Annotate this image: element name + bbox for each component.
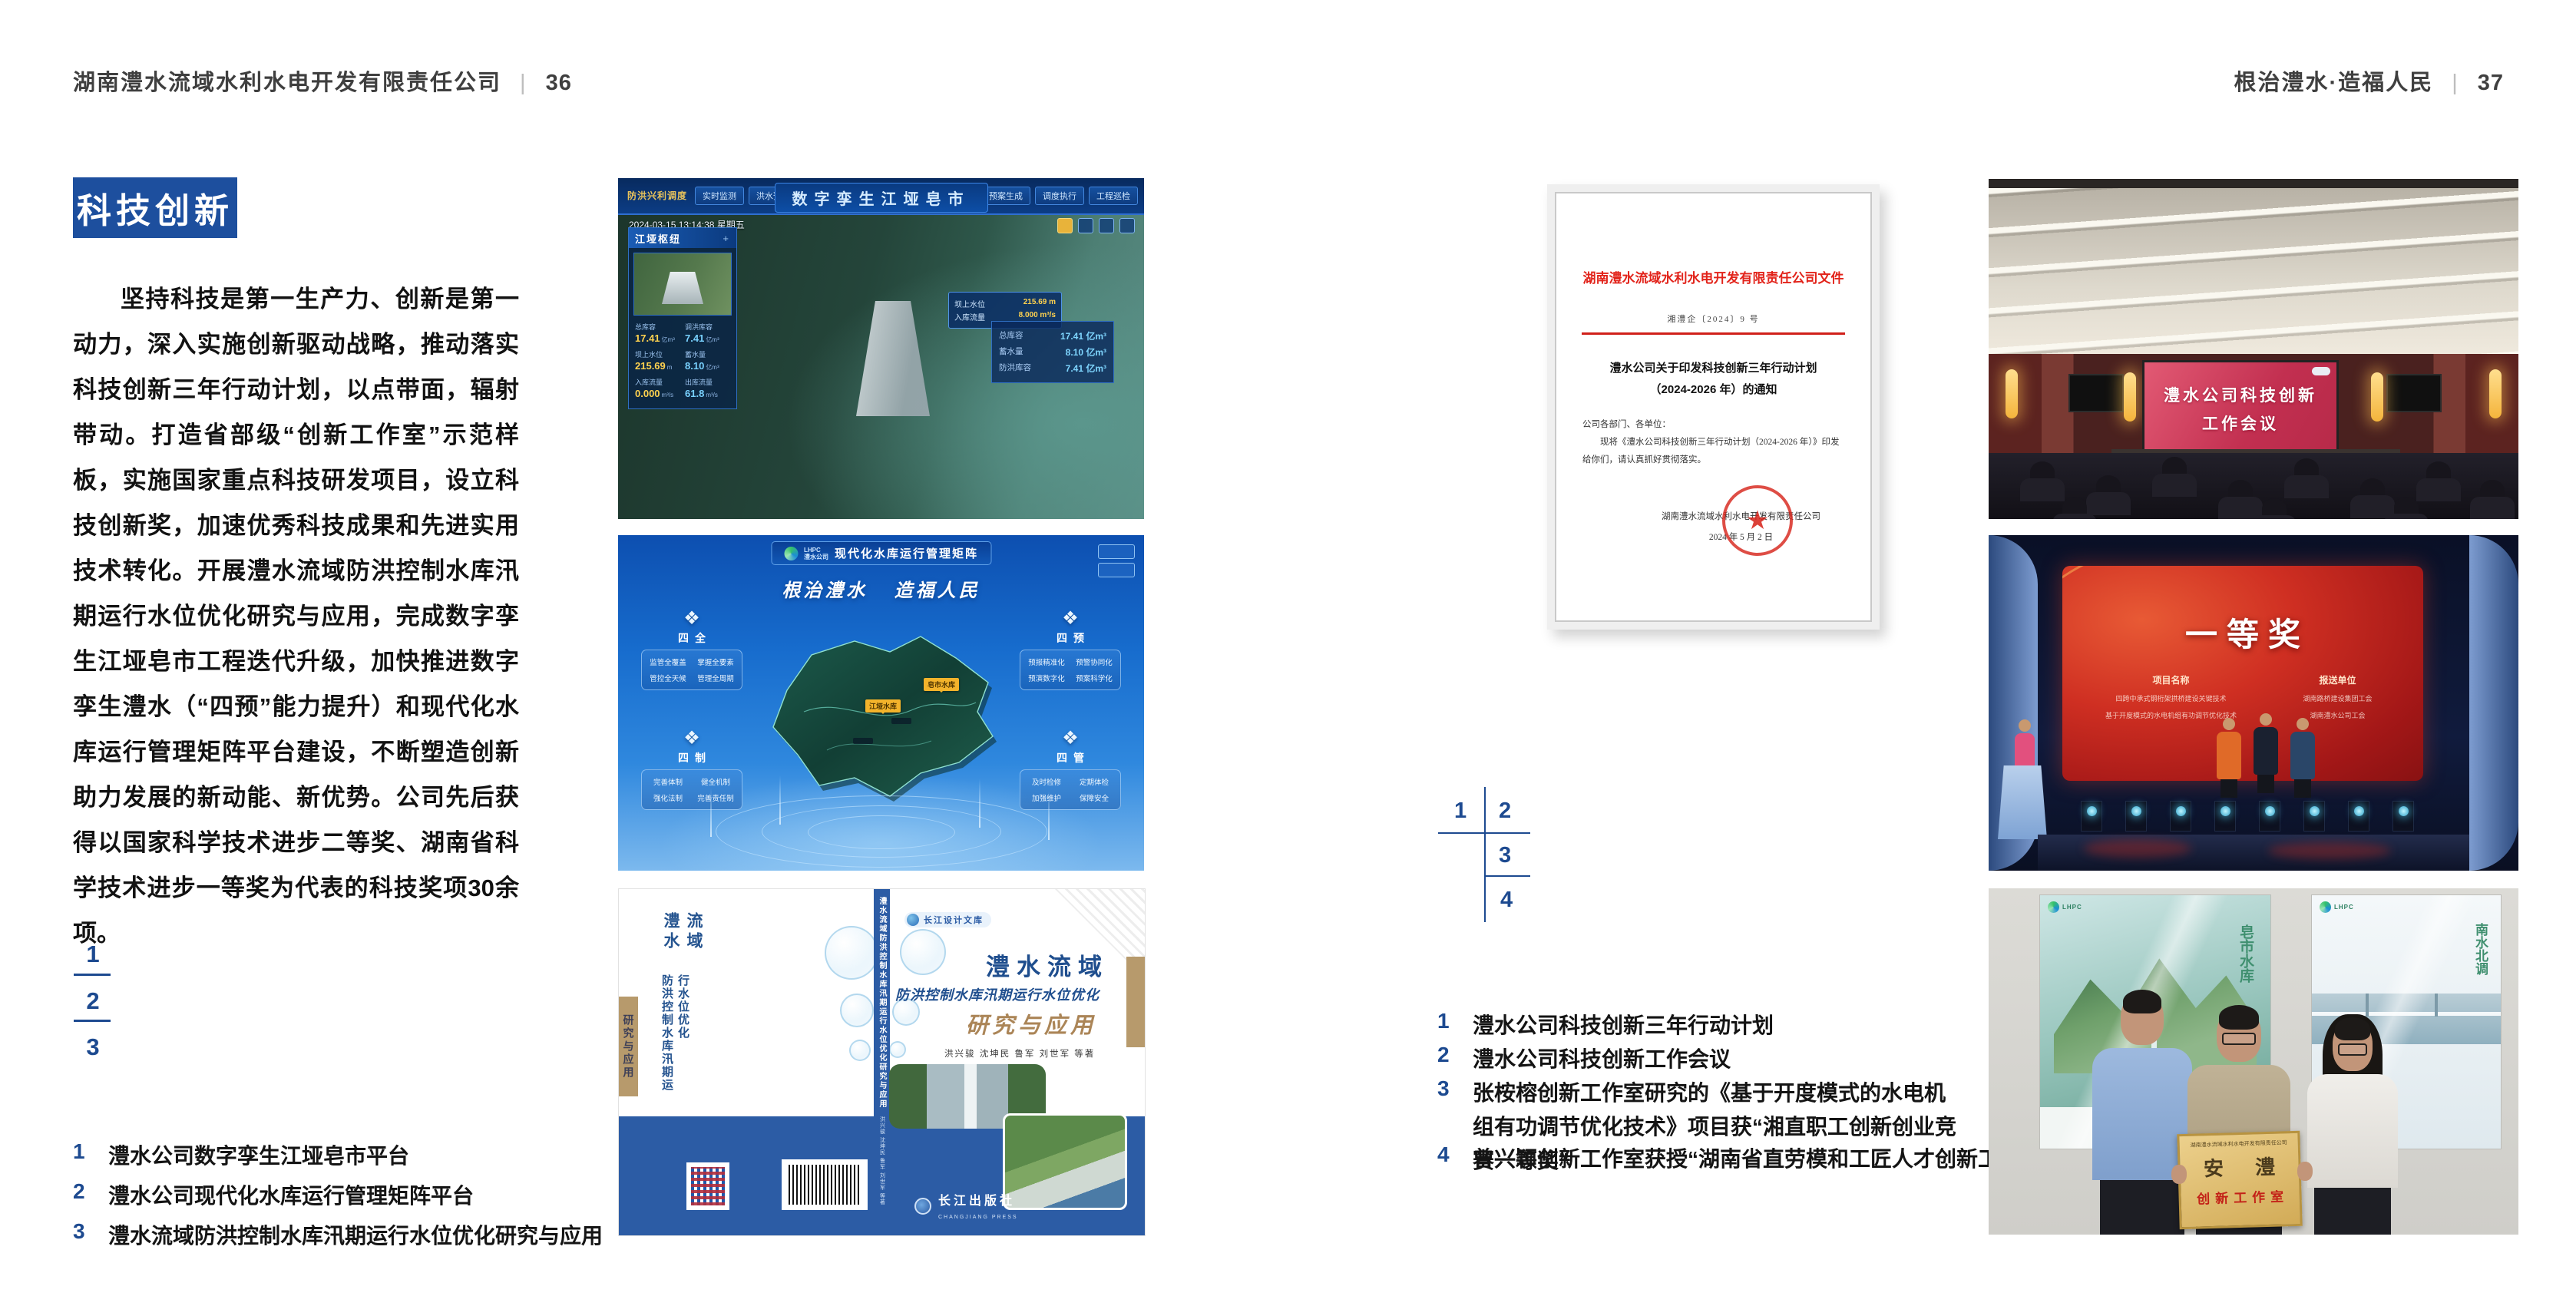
panel-icon: ❖	[1020, 729, 1121, 749]
figure-ref-1: 1	[1454, 798, 1467, 824]
panel-items: 预报精准化预警协同化 预演数字化预案科学化	[1020, 650, 1121, 690]
layers-icon	[1078, 218, 1093, 233]
section-title-badge: 科技创新	[73, 177, 237, 238]
photo-award-ceremony: 一等奖 项目名称 报送单位 四跨中承式钢桁架拱桥建设关键技术 湖南路桥建设集团工…	[1989, 535, 2518, 871]
figure-ref-divider	[74, 974, 111, 976]
person-head	[2121, 993, 2164, 1045]
hand	[2171, 1165, 2187, 1184]
person-legs	[2294, 779, 2311, 798]
small-station-tag	[891, 718, 911, 724]
slogan-text: 根治澧水·造福人民	[2234, 71, 2434, 95]
barcode-bars	[789, 1165, 861, 1205]
panel-siquan: ❖ 四全 监管全覆盖掌握全要素 管控全天候管理全周期	[641, 609, 742, 690]
person-head	[2217, 1008, 2261, 1062]
qr-pixels	[691, 1167, 725, 1205]
spine-authors: 洪兴骏 沈坤民 鲁军 刘世军 等著	[878, 1116, 886, 1205]
wall-lamp	[2006, 369, 2018, 418]
ceiling-light-strips	[1989, 188, 2518, 354]
awardee-orange	[2216, 718, 2242, 798]
host-podium	[1998, 765, 2047, 839]
right-page-header: 根治澧水·造福人民|37	[2234, 64, 2504, 97]
matrix-slogan: 根治澧水 造福人民	[618, 575, 1144, 602]
seal-star-icon: ★	[1746, 505, 1769, 536]
figure-ref-1: 1	[73, 941, 113, 968]
wall-tv-screen	[2386, 374, 2442, 412]
figure-ref-4: 4	[1500, 888, 1513, 913]
light-bulb	[2354, 806, 2364, 816]
dam-3d-model	[856, 301, 930, 416]
back-title-line2: 防洪控制水库汛期运行水位优化	[659, 974, 705, 1096]
salutation: 公司各部门、各单位：	[1582, 416, 1844, 434]
light-bulb	[2310, 806, 2320, 816]
floor-reflection	[2084, 839, 2191, 858]
light-bulb	[2265, 806, 2275, 816]
figure-official-document: 湖南澧水流域水利水电开发有限责任公司文件 湘澧企〔2024〕9 号 澧水公司关于…	[1547, 184, 1880, 630]
panel-icon: ❖	[1020, 609, 1121, 629]
stage-light	[2392, 801, 2414, 832]
left-page-number: 36	[546, 71, 572, 95]
stage-side-panel	[2469, 535, 2518, 871]
twin-platform-title: 数字孪生江垭皂市	[775, 183, 988, 213]
magazine-spread: 湖南澧水流域水利水电开发有限责任公司|36 根治澧水·造福人民|37 科技创新 …	[0, 0, 2576, 1306]
stage-light	[2259, 801, 2280, 832]
audience-person	[2096, 475, 2121, 497]
person-legs	[2257, 775, 2274, 793]
header-divider: |	[520, 71, 527, 95]
tooltip-row: 坝上水位215.69 m	[954, 298, 1056, 309]
right-page-number: 37	[2478, 71, 2504, 95]
cover-tan-block-front	[1126, 957, 1145, 1047]
figure-ref-2: 2	[73, 987, 113, 1015]
back-title-line1: 澧水流域	[659, 912, 705, 965]
matrix-header: LHPC澧水公司 现代化水库运行管理矩阵	[771, 541, 991, 565]
figure-ref-vline	[1484, 787, 1486, 922]
series-badge: 长江设计文库	[904, 912, 991, 927]
caption-number: 3	[73, 1219, 108, 1253]
document-page: 湖南澧水流域水利水电开发有限责任公司文件 湘澧企〔2024〕9 号 澧水公司关于…	[1555, 192, 1872, 622]
figure-digital-twin-platform: 防洪兴利调度 实时监测 洪水预报 防洪预警 态势预测 预案生成 调度执行 工程巡…	[618, 178, 1144, 519]
notice-title: 澧水公司关于印发科技创新三年行动计划（2024-2026 年）的通知	[1556, 358, 1870, 401]
alert-icon	[1119, 218, 1135, 233]
award-led-screen: 一等奖 项目名称 报送单位 四跨中承式钢桁架拱桥建设关键技术 湖南路桥建设集团工…	[2062, 566, 2423, 781]
caption-text: 澧水公司数字孪生江垭皂市平台	[108, 1139, 409, 1173]
stage-light	[2081, 801, 2102, 832]
award-title: 一等奖	[2062, 609, 2423, 656]
person-head	[2019, 719, 2031, 732]
photo-studio-group: LHPC 皂市水库 LHPC 南水北调	[1989, 888, 2518, 1235]
front-title-line1: 澧水流域	[986, 947, 1109, 982]
person-pants	[2314, 1188, 2391, 1235]
small-station-tag	[853, 738, 873, 744]
caption-number: 2	[73, 1179, 108, 1213]
isbn-barcode	[782, 1159, 868, 1210]
award-project: 四跨中承式钢桁架拱桥建设关键技术	[2082, 693, 2260, 703]
caption-number: 2	[1437, 1043, 1473, 1076]
audience-person	[2162, 457, 2187, 478]
person-hair	[2219, 1005, 2259, 1030]
side-stat-row: 蓄水量8.10 亿m³	[999, 346, 1106, 359]
light-bulb	[2399, 806, 2409, 816]
locate-icon	[1099, 218, 1114, 233]
person-hair	[2335, 1017, 2370, 1040]
twin-toolbar-icons	[1057, 218, 1135, 233]
light-bulb	[2221, 806, 2230, 816]
caption-text: 曾兴颖创新工作室获授“湖南省直劳模和工匠人才创新工作室”	[1473, 1142, 2053, 1176]
dam-thumbnail	[633, 253, 732, 316]
side-stat-row: 总库容17.41 亿m³	[999, 329, 1106, 342]
panel-icon: ❖	[641, 729, 742, 749]
left-page-header: 湖南澧水流域水利水电开发有限责任公司|36	[73, 64, 572, 97]
audience-person	[2480, 480, 2505, 501]
light-pillar	[779, 775, 781, 825]
stat-cell: 出库流量61.8m³/s	[685, 377, 730, 401]
front-title-line3: 研究与应用	[966, 1007, 1096, 1040]
document-red-header: 湖南澧水流域水利水电开发有限责任公司文件	[1569, 267, 1858, 286]
glasses-icon	[2222, 1033, 2256, 1045]
caption-row: 4 曾兴颖创新工作室获授“湖南省直劳模和工匠人才创新工作室”	[1437, 1142, 2053, 1176]
stage-light	[2170, 801, 2191, 832]
meeting-led-screen: 澧水公司科技创新 工作会议	[2142, 360, 2339, 457]
light-bulb	[2087, 806, 2097, 816]
caption-number: 1	[1437, 1009, 1473, 1043]
light-pillar	[979, 779, 980, 828]
caption-text: 澧水公司科技创新三年行动计划	[1473, 1009, 1774, 1043]
panel-icon: ❖	[641, 609, 742, 629]
stat-cell: 总库容17.41亿m³	[635, 322, 680, 346]
ripple-ring	[808, 815, 955, 849]
back-title-line3: 研究与应用	[621, 1014, 637, 1080]
caption-row: 2 澧水公司科技创新工作会议	[1437, 1043, 1731, 1076]
light-pillar	[1048, 791, 1050, 840]
wall-tv-screen	[2068, 374, 2124, 412]
screen-logo-chip	[2312, 367, 2330, 375]
series-name: 长江设计文库	[924, 914, 984, 926]
person-head	[2260, 713, 2272, 726]
hand	[2297, 1162, 2313, 1181]
panel-siyu: ❖ 四预 预报精准化预警协同化 预演数字化预案科学化	[1020, 609, 1121, 690]
publisher-name-en: CHANGJIANG PRESS	[938, 1215, 1018, 1220]
matrix-title: 现代化水库运行管理矩阵	[835, 545, 978, 561]
caption-text: 澧水公司科技创新工作会议	[1473, 1043, 1731, 1076]
person-hair	[2123, 990, 2161, 1013]
red-seal-icon: ★	[1722, 485, 1793, 556]
figure-book-cover: 澧水流域 防洪控制水库汛期运行水位优化 研究与应用 澧水流域防洪控制水库汛期运行…	[618, 888, 1146, 1236]
audience-person	[2394, 497, 2419, 518]
marker-zaoshi-reservoir: 皂市水库	[924, 678, 959, 691]
bubble-decoration	[900, 929, 946, 975]
panel-title: 四管	[1020, 750, 1121, 765]
intro-paragraph: 坚持科技是第一生产力、创新是第一动力，深入实施创新驱动战略，推动落实科技创新三年…	[73, 276, 519, 956]
person-pants	[2100, 1180, 2184, 1235]
publisher-name: 长江出版社	[938, 1193, 1015, 1208]
light-pillar	[710, 788, 712, 837]
panel-title: 四预	[1020, 630, 1121, 646]
wall-lamp	[2371, 372, 2383, 422]
figure-ref-3: 3	[73, 1033, 113, 1061]
caption-number: 4	[1437, 1142, 1473, 1176]
panel-title: 四全	[641, 630, 742, 646]
stage-light	[2348, 801, 2369, 832]
caption-row: 2 澧水公司现代化水库运行管理矩阵平台	[73, 1179, 474, 1213]
front-title-line2: 防洪控制水库汛期运行水位优化	[895, 984, 1100, 1004]
stage-light	[2214, 801, 2236, 832]
matrix-button	[1098, 544, 1135, 559]
photo-top-band	[1989, 179, 2518, 188]
marker-jiangya-reservoir: 江垭水库	[865, 699, 901, 713]
person-shirt-white	[2307, 1074, 2398, 1188]
back-tan-block: 研究与应用	[619, 997, 638, 1096]
plaque-header: 湖南澧水流域水利水电开发有限责任公司	[2191, 1139, 2287, 1149]
award-unit: 湖南路桥建设集团工会	[2272, 693, 2403, 703]
figure-ref-hline	[1438, 832, 1530, 834]
stat-cell: 坝上水位215.69m	[635, 349, 680, 373]
stat-cell: 调洪库容7.41亿m³	[685, 322, 730, 346]
twin-side-panel: 总库容17.41 亿m³ 蓄水量8.10 亿m³ 防洪库容7.41 亿m³	[991, 321, 1114, 383]
figure-ref-hline	[1486, 875, 1530, 877]
panel-title: 四制	[641, 750, 742, 765]
glasses-icon	[2338, 1043, 2367, 1056]
person-left-man	[2092, 993, 2193, 1235]
panel-sizhi: ❖ 四制 完善体制健全机制 强化法制完善责任制	[641, 729, 742, 810]
caption-text: 澧水公司现代化水库运行管理矩阵平台	[108, 1179, 474, 1213]
panel-siguan: ❖ 四管 及时检修定期体检 加强维护保障安全	[1020, 729, 1121, 810]
header-divider: |	[2452, 71, 2459, 95]
photo-innovation-meeting: 澧水公司科技创新 工作会议	[1989, 179, 2518, 519]
side-stat-row: 防洪库容7.41 亿m³	[999, 362, 1106, 375]
tab-project-inspection: 工程巡检	[1089, 187, 1138, 205]
book-spine: 澧水流域防洪控制水库汛期运行水位优化研究与应用 洪兴骏 沈坤民 鲁军 刘世军 等…	[874, 889, 890, 1235]
twin-panel-title: 江垭枢纽	[635, 231, 681, 246]
qr-code	[686, 1162, 729, 1210]
award-columns: 项目名称 报送单位 四跨中承式钢桁架拱桥建设关键技术 湖南路桥建设集团工会 基于…	[2082, 673, 2403, 720]
bubble-decoration	[825, 926, 878, 980]
person-body	[2254, 727, 2278, 775]
audience-person	[2426, 461, 2451, 483]
audience-person	[2262, 498, 2287, 519]
spine-title: 澧水流域防洪控制水库汛期运行水位优化研究与应用	[876, 897, 888, 1109]
twin-panel-header: 江垭枢纽 +	[629, 228, 736, 248]
caption-row: 3 澧水流域防洪控制水库汛期运行水位优化研究与应用	[73, 1219, 603, 1253]
audience-person	[2062, 497, 2087, 518]
bubble-decoration	[840, 994, 874, 1027]
tab-plan-generation: 预案生成	[981, 187, 1030, 205]
front-small-photo	[1003, 1113, 1127, 1210]
meeting-ceiling	[1989, 188, 2518, 354]
person-head	[2333, 1020, 2373, 1071]
notice-body: 公司各部门、各单位： 现将《澧水公司科技创新三年行动计划（2024-2026 年…	[1582, 416, 1844, 469]
wall-lamp	[2124, 372, 2136, 422]
person-head	[2223, 718, 2235, 730]
panel-items: 及时检修定期体检 加强维护保障安全	[1020, 769, 1121, 810]
authors-line: 洪兴骏 沈坤民 鲁军 刘世军 等著	[944, 1047, 1095, 1060]
expand-icon: +	[723, 233, 730, 244]
person-right-woman	[2306, 1020, 2399, 1235]
person-head	[2297, 718, 2309, 730]
company-name: 湖南澧水流域水利水电开发有限责任公司	[73, 71, 501, 95]
floor-reflection	[2268, 842, 2391, 859]
bubble-decoration	[849, 1040, 871, 1061]
caption-row: 1 澧水公司科技创新三年行动计划	[1437, 1009, 1774, 1043]
bubble-decoration	[889, 1041, 906, 1058]
series-logo-icon	[907, 914, 919, 926]
caption-number: 1	[73, 1139, 108, 1173]
publisher-logo-icon	[914, 1198, 931, 1215]
panel-items: 完善体制健全机制 强化法制完善责任制	[641, 769, 742, 810]
figure-ref-2: 2	[1499, 798, 1511, 824]
audience-person	[2294, 458, 2319, 480]
person-body	[2290, 732, 2315, 779]
person-body	[2217, 732, 2241, 779]
screen-title-line2: 工作会议	[2202, 412, 2279, 435]
column-header-project: 项目名称	[2082, 673, 2260, 686]
stage-floor	[2038, 835, 2469, 871]
screen-title-line1: 澧水公司科技创新	[2164, 383, 2317, 406]
figure-ref-divider	[74, 1020, 111, 1022]
user-icon	[1057, 218, 1073, 233]
person-legs	[2221, 779, 2237, 798]
back-cover-title: 澧水流域 防洪控制水库汛期运行水位优化	[659, 912, 705, 1096]
caption-row: 1 澧水公司数字孪生江垭皂市平台	[73, 1139, 409, 1173]
stat-cell: 蓄水量8.10亿m³	[685, 349, 730, 373]
twin-left-panel: 江垭枢纽 + 总库容17.41亿m³ 调洪库容7.41亿m³ 坝上水位215.6…	[628, 227, 737, 409]
audience-person	[2030, 461, 2055, 483]
document-red-rule	[1582, 332, 1846, 335]
audience-person	[2360, 478, 2385, 500]
dam-shape	[662, 272, 703, 304]
awardee-navy	[2290, 718, 2316, 798]
tab-realtime-monitor: 实时监测	[695, 187, 744, 205]
plaque-subtitle: 创新工作室	[2191, 1185, 2290, 1208]
light-bulb	[2176, 806, 2186, 816]
document-number: 湘澧企〔2024〕9 号	[1556, 312, 1870, 325]
figure-ref-3: 3	[1499, 843, 1511, 868]
publisher-block: 长江出版社 CHANGJIANG PRESS	[914, 1190, 1018, 1222]
wall-lamp	[2489, 369, 2502, 418]
stat-cell: 入库流量0.000m³/s	[635, 377, 680, 401]
caption-text: 澧水流域防洪控制水库汛期运行水位优化研究与应用	[108, 1219, 603, 1253]
plaque-title: 安 澧	[2191, 1151, 2287, 1182]
light-bulb	[2131, 806, 2141, 816]
tab-dispatch-execution: 调度执行	[1035, 187, 1084, 205]
lhpc-logo-icon	[784, 547, 798, 560]
stage-light	[2125, 801, 2147, 832]
twin-menu-label: 防洪兴利调度	[627, 189, 687, 202]
figure-reservoir-matrix-platform: LHPC澧水公司 现代化水库运行管理矩阵 根治澧水 造福人民 ❖ 四全 监管全覆…	[618, 535, 1144, 871]
stage-light	[2303, 801, 2325, 832]
column-header-unit: 报送单位	[2272, 673, 2403, 686]
twin-stats-grid: 总库容17.41亿m³ 调洪库容7.41亿m³ 坝上水位215.69m 蓄水量8…	[629, 320, 736, 408]
studio-plaque: 湖南澧水流域水利水电开发有限责任公司 安 澧 创新工作室	[2177, 1131, 2302, 1229]
panel-items: 监管全覆盖掌握全要素 管控全天候管理全周期	[641, 650, 742, 690]
audience-person	[2228, 480, 2253, 501]
presenter-suit	[2253, 713, 2279, 793]
lhpc-logo-text: LHPC澧水公司	[804, 547, 828, 560]
body-text: 现将《澧水公司科技创新三年行动计划（2024-2026 年）》印发给你们，请认真…	[1582, 434, 1844, 469]
